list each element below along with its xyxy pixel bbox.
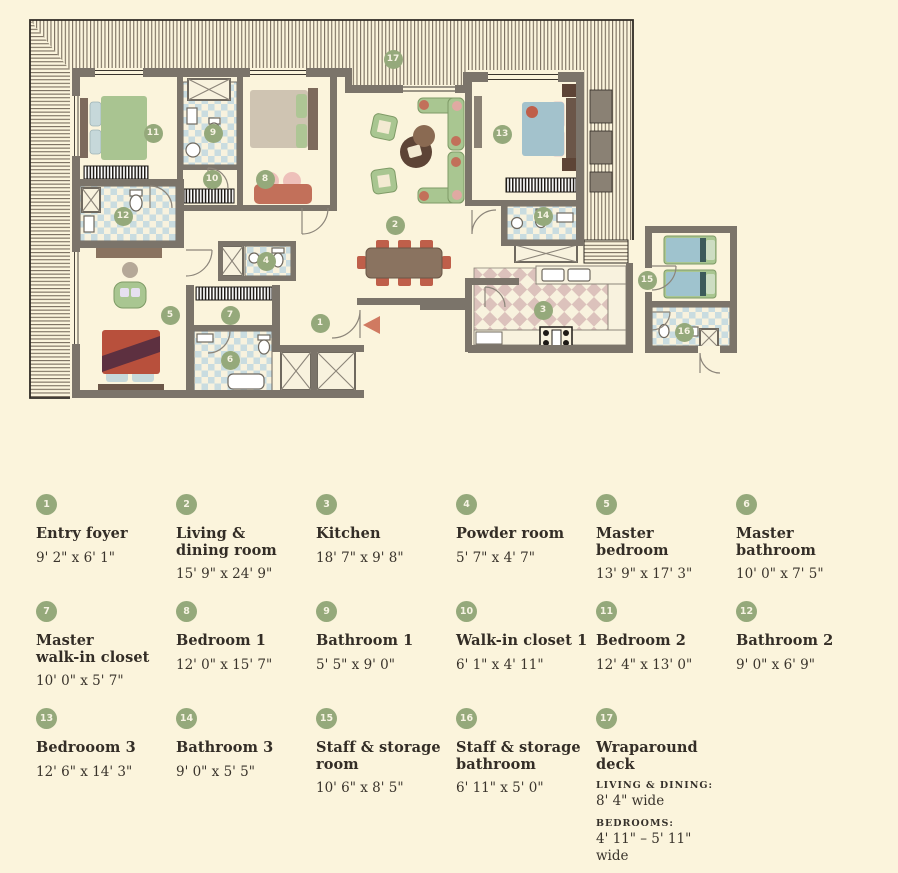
legend-room-name: Bathroom 1	[316, 633, 448, 650]
legend-room-dims: 18' 7" x 9' 8"	[316, 550, 448, 568]
legend-item-powder-room: 4 Powder room 5' 7" x 4' 7"	[456, 494, 588, 601]
plan-marker-2: 2	[386, 216, 405, 235]
plan-marker-16: 16	[675, 323, 694, 342]
legend-number-badge: 8	[176, 601, 197, 622]
legend-number-badge: 5	[596, 494, 617, 515]
legend-deck-label-living-dining: LIVING & DINING:	[596, 780, 728, 791]
legend-deck-label-bedrooms: BEDROOMS:	[596, 818, 728, 829]
legend-room-name: Bedroom 2	[596, 633, 728, 650]
legend-deck-value-living-dining: 8' 4" wide	[596, 793, 728, 811]
staff-room-furniture	[664, 236, 716, 298]
legend-room-dims: 10' 0" x 5' 7"	[36, 673, 168, 691]
legend: 1 Entry foyer 9' 2" x 6' 1" 2 Living & d…	[36, 494, 882, 866]
plan-marker-14: 14	[534, 207, 553, 226]
legend-item-bathroom-3: 14 Bathroom 3 9' 0" x 5' 5"	[176, 708, 308, 866]
plan-marker-17: 17	[384, 50, 403, 69]
legend-room-name: Entry foyer	[36, 526, 168, 543]
legend-room-name: Wraparound deck	[596, 740, 728, 773]
legend-number-badge: 3	[316, 494, 337, 515]
legend-room-name: Walk-in closet 1	[456, 633, 588, 650]
legend-item-staff-room: 15 Staff & storage room 10' 6" x 8' 5"	[316, 708, 448, 866]
legend-number-badge: 12	[736, 601, 757, 622]
bedroom2-furniture	[80, 96, 148, 179]
legend-room-dims: 9' 0" x 5' 5"	[176, 764, 308, 782]
plan-marker-10: 10	[203, 170, 222, 189]
legend-number-badge: 11	[596, 601, 617, 622]
plan-marker-15: 15	[638, 271, 657, 290]
legend-number-badge: 10	[456, 601, 477, 622]
plan-marker-1: 1	[311, 314, 330, 333]
legend-item-bathroom-1: 9 Bathroom 1 5' 5" x 9' 0"	[316, 601, 448, 708]
floor-plan-page: 1 2 3 4 5 6 7 8 9 10 11 12 13 14 15 16 1…	[0, 0, 898, 873]
legend-number-badge: 13	[36, 708, 57, 729]
legend-number-badge: 9	[316, 601, 337, 622]
legend-room-dims: 13' 9" x 17' 3"	[596, 566, 728, 584]
legend-room-name: Bedrooom 3	[36, 740, 168, 757]
legend-room-name: Bathroom 3	[176, 740, 308, 757]
floor-plan: 1 2 3 4 5 6 7 8 9 10 11 12 13 14 15 16 1…	[0, 0, 898, 440]
dining-furniture	[357, 240, 451, 286]
legend-room-dims: 12' 4" x 13' 0"	[596, 657, 728, 675]
legend-item-walk-in-closet-1: 10 Walk-in closet 1 6' 1" x 4' 11"	[456, 601, 588, 708]
legend-deck-value-bedrooms: 4' 11" – 5' 11" wide	[596, 831, 728, 866]
plan-marker-5: 5	[161, 306, 180, 325]
legend-item-bathroom-2: 12 Bathroom 2 9' 0" x 6' 9"	[736, 601, 868, 708]
legend-room-dims: 9' 2" x 6' 1"	[36, 550, 168, 568]
legend-number-badge: 16	[456, 708, 477, 729]
legend-room-dims: 9' 0" x 6' 9"	[736, 657, 868, 675]
legend-number-badge: 7	[36, 601, 57, 622]
legend-room-name: Living & dining room	[176, 526, 308, 559]
plan-marker-4: 4	[257, 252, 276, 271]
legend-number-badge: 15	[316, 708, 337, 729]
legend-number-badge: 17	[596, 708, 617, 729]
legend-item-wraparound-deck: 17 Wraparound deck LIVING & DINING: 8' 4…	[596, 708, 728, 866]
legend-room-dims: 15' 9" x 24' 9"	[176, 566, 308, 584]
plan-marker-3: 3	[534, 301, 553, 320]
legend-room-dims: 12' 6" x 14' 3"	[36, 764, 168, 782]
legend-item-master-wic: 7 Master walk-in closet 10' 0" x 5' 7"	[36, 601, 168, 708]
legend-room-name: Master bedroom	[596, 526, 728, 559]
bedroom3-furniture	[474, 84, 578, 192]
deck-planters	[590, 90, 612, 192]
legend-item-living-dining: 2 Living & dining room 15' 9" x 24' 9"	[176, 494, 308, 601]
legend-number-badge: 14	[176, 708, 197, 729]
legend-item-kitchen: 3 Kitchen 18' 7" x 9' 8"	[316, 494, 448, 601]
legend-room-dims: 5' 5" x 9' 0"	[316, 657, 448, 675]
legend-item-master-bedroom: 5 Master bedroom 13' 9" x 17' 3"	[596, 494, 728, 601]
legend-item-bedroom-1: 8 Bedroom 1 12' 0" x 15' 7"	[176, 601, 308, 708]
legend-room-name: Master walk-in closet	[36, 633, 168, 666]
legend-item-entry-foyer: 1 Entry foyer 9' 2" x 6' 1"	[36, 494, 168, 601]
legend-room-name: Kitchen	[316, 526, 448, 543]
legend-room-name: Powder room	[456, 526, 588, 543]
legend-room-name: Staff & storage bathroom	[456, 740, 588, 773]
legend-item-master-bathroom: 6 Master bathroom 10' 0" x 7' 5"	[736, 494, 868, 601]
legend-room-name: Bathroom 2	[736, 633, 868, 650]
legend-item-bedroom-3: 13 Bedrooom 3 12' 6" x 14' 3"	[36, 708, 168, 866]
legend-room-name: Bedroom 1	[176, 633, 308, 650]
plan-marker-13: 13	[493, 125, 512, 144]
legend-number-badge: 2	[176, 494, 197, 515]
legend-number-badge: 6	[736, 494, 757, 515]
plan-marker-7: 7	[221, 306, 240, 325]
floor-plan-drawing	[0, 0, 898, 440]
legend-item-staff-bathroom: 16 Staff & storage bathroom 6' 11" x 5' …	[456, 708, 588, 866]
entry-arrow-icon	[363, 316, 380, 334]
legend-room-dims: 5' 7" x 4' 7"	[456, 550, 588, 568]
plan-marker-11: 11	[144, 124, 163, 143]
plan-marker-8: 8	[256, 170, 275, 189]
legend-room-name: Master bathroom	[736, 526, 868, 559]
legend-room-dims: 10' 6" x 8' 5"	[316, 780, 448, 798]
legend-room-dims: 12' 0" x 15' 7"	[176, 657, 308, 675]
legend-room-dims: 6' 1" x 4' 11"	[456, 657, 588, 675]
plan-marker-9: 9	[204, 124, 223, 143]
legend-number-badge: 1	[36, 494, 57, 515]
legend-room-dims: 10' 0" x 7' 5"	[736, 566, 868, 584]
legend-number-badge: 4	[456, 494, 477, 515]
legend-room-name: Staff & storage room	[316, 740, 448, 773]
plan-marker-6: 6	[221, 351, 240, 370]
living-room-furniture	[370, 98, 464, 203]
plan-marker-12: 12	[114, 207, 133, 226]
legend-item-bedroom-2: 11 Bedroom 2 12' 4" x 13' 0"	[596, 601, 728, 708]
legend-room-dims: 6' 11" x 5' 0"	[456, 780, 588, 798]
